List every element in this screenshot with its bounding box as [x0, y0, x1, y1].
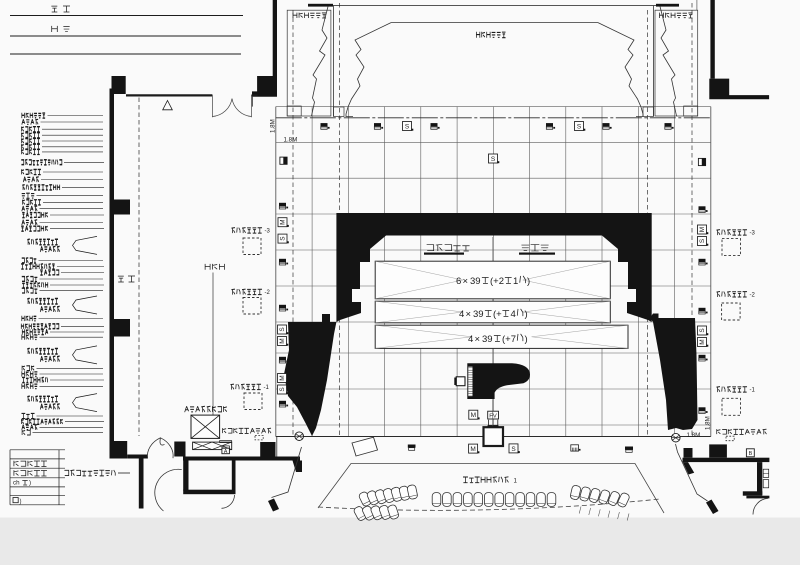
- svg-text:M: M: [279, 338, 286, 343]
- svg-text:39: 39: [482, 334, 493, 345]
- svg-text:-1: -1: [264, 385, 270, 391]
- svg-text:S: S: [699, 328, 706, 333]
- svg-text:1.8M: 1.8M: [705, 416, 712, 430]
- svg-text:4: 4: [459, 309, 464, 320]
- svg-text:(+2: (+2: [490, 276, 504, 287]
- svg-text:S: S: [280, 236, 287, 241]
- svg-text:S: S: [491, 156, 496, 163]
- svg-text:): ): [527, 276, 530, 287]
- svg-text:S: S: [577, 123, 582, 130]
- svg-text:×: ×: [475, 334, 481, 345]
- svg-text:-2: -2: [265, 290, 271, 296]
- svg-text:1.8M: 1.8M: [270, 119, 277, 133]
- svg-text:(+: (+: [493, 309, 502, 320]
- svg-text:4: 4: [511, 309, 516, 320]
- svg-text:4: 4: [468, 334, 473, 345]
- svg-text:39: 39: [473, 309, 484, 320]
- svg-text:1: 1: [513, 276, 518, 287]
- svg-text:1.8M: 1.8M: [687, 432, 701, 439]
- svg-text:×: ×: [466, 309, 472, 320]
- svg-text:A: A: [224, 449, 228, 455]
- svg-text:1: 1: [514, 477, 518, 484]
- svg-text:-2: -2: [750, 293, 756, 299]
- svg-text:B: B: [749, 451, 753, 457]
- svg-text:S: S: [699, 238, 706, 243]
- svg-text:×: ×: [463, 276, 469, 287]
- svg-text:S: S: [405, 123, 410, 130]
- svg-text:M: M: [471, 412, 476, 419]
- svg-text:1.8M: 1.8M: [284, 137, 298, 144]
- svg-text:): ): [20, 499, 22, 505]
- svg-text:M: M: [699, 227, 706, 232]
- svg-text:S: S: [279, 327, 286, 332]
- svg-text:(+7: (+7: [502, 334, 516, 345]
- svg-text:M: M: [279, 375, 286, 380]
- svg-text:M: M: [470, 446, 475, 453]
- svg-text:ch: ch: [13, 480, 20, 487]
- svg-text:S: S: [511, 446, 516, 453]
- svg-text:S: S: [279, 387, 286, 392]
- svg-text:39: 39: [470, 276, 481, 287]
- svg-text:M: M: [280, 219, 287, 224]
- svg-text:-3: -3: [750, 231, 756, 237]
- svg-text:-1: -1: [750, 388, 756, 394]
- svg-text:6: 6: [456, 276, 461, 287]
- svg-text:): ): [525, 309, 528, 320]
- svg-text:): ): [29, 480, 31, 487]
- svg-text:-3: -3: [265, 229, 271, 235]
- svg-text:M: M: [699, 339, 706, 344]
- svg-text:): ): [525, 334, 528, 345]
